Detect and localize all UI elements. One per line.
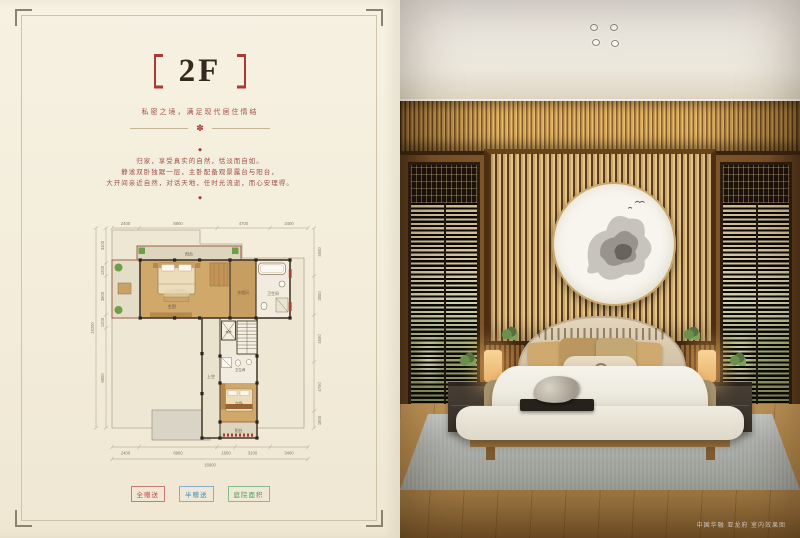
downlight-icon bbox=[611, 40, 619, 47]
dim-label: 1200 bbox=[100, 317, 105, 327]
dim-label: 3800 bbox=[100, 291, 105, 301]
window-blinds bbox=[723, 203, 789, 404]
paragraph-line: 静谧双卧独踞一层，主卧配备观景露台与阳台， bbox=[40, 167, 360, 178]
bench-leg bbox=[486, 447, 495, 460]
plan-legend: 全赠送 半赠送 庭院面积 bbox=[0, 486, 400, 502]
dim-label: 3100 bbox=[248, 451, 258, 456]
window-blinds bbox=[411, 203, 477, 404]
dim-label: 3400 bbox=[284, 221, 294, 226]
paragraph-line: 归家，享受真实的自然，恬淡而自如。 bbox=[40, 156, 360, 167]
dim-label: 6900 bbox=[173, 221, 183, 226]
downlight-icon bbox=[590, 24, 598, 31]
plant-icon bbox=[502, 326, 518, 340]
floor-plan: 阳台 主卧 衣帽间 卫生间 上空 电梯 卫生间 次卧 阳台 bbox=[52, 206, 342, 476]
wood-slat-cornice bbox=[400, 99, 800, 155]
dim-label: 6900 bbox=[173, 451, 183, 456]
window-right bbox=[720, 162, 792, 407]
dim-total-label: 16800 bbox=[204, 463, 216, 468]
dim-label: 4700 bbox=[317, 382, 322, 392]
rock-painting bbox=[554, 184, 670, 300]
dim-label: 1200 bbox=[100, 265, 105, 275]
divider-line bbox=[130, 128, 188, 129]
frame-corner-icon bbox=[15, 9, 32, 26]
downlight-icon bbox=[610, 24, 618, 31]
plant-icon bbox=[684, 326, 700, 340]
description-paragraph: 归家，享受真实的自然，恬淡而自如。 静谧双卧独踞一层，主卧配备观景露台与阳台， … bbox=[40, 156, 360, 189]
legend-full-gift: 全赠送 bbox=[131, 486, 166, 502]
foot-bench bbox=[456, 406, 744, 440]
room-label: 上空 bbox=[207, 373, 215, 379]
diamond-icon: ◆ bbox=[0, 195, 400, 201]
bench-leg bbox=[706, 447, 715, 460]
dim-label: 1800 bbox=[317, 415, 322, 425]
plant-icon bbox=[460, 352, 476, 366]
title-bracket-right-icon bbox=[237, 54, 246, 88]
room-label: 衣帽间 bbox=[237, 290, 249, 295]
circular-wall-art bbox=[552, 182, 676, 306]
room-label: 阳台 bbox=[235, 428, 243, 433]
dim-label: 2400 bbox=[121, 221, 131, 226]
dim-label: 4700 bbox=[239, 221, 249, 226]
room-label: 阳台 bbox=[185, 251, 193, 257]
dim-label: 2400 bbox=[121, 451, 131, 456]
dim-label: 3800 bbox=[317, 291, 322, 301]
dim-total-label: 19200 bbox=[90, 322, 95, 334]
divider-line bbox=[212, 128, 270, 129]
legend-half-gift: 半赠送 bbox=[179, 486, 214, 502]
dim-label: 3400 bbox=[284, 451, 294, 456]
dim-label: 1600 bbox=[221, 451, 231, 456]
room-label: 次卧 bbox=[235, 400, 243, 407]
flyer-page: 2F 私密之境，满足现代居住情结 ✽ ◆ 归家，享受真实的自然，恬淡而自如。 静… bbox=[0, 0, 400, 538]
window-left bbox=[408, 162, 480, 407]
window-lattice bbox=[723, 165, 789, 203]
paragraph-line: 大开间亲近自然，对话天地，任时光流逝，而心安理得。 bbox=[40, 178, 360, 189]
legend-courtyard-area: 庭院面积 bbox=[228, 486, 270, 502]
room-label: 主卧 bbox=[168, 303, 177, 310]
floor-title-row: 2F bbox=[0, 54, 400, 88]
room-label: 卫生间 bbox=[235, 367, 246, 372]
flower-medallion-icon: ✽ bbox=[196, 124, 204, 133]
frame-corner-icon bbox=[366, 9, 383, 26]
ceiling bbox=[400, 0, 800, 100]
interior-photo: 中国华融 亚龙府 室内效果图 bbox=[400, 0, 800, 538]
room-label: 卫生间 bbox=[267, 291, 279, 296]
floor-subtitle: 私密之境，满足现代居住情结 bbox=[0, 107, 400, 117]
dim-label: 9800 bbox=[100, 373, 105, 383]
flyer-canvas: 2F 私密之境，满足现代居住情结 ✽ ◆ 归家，享受真实的自然，恬淡而自如。 静… bbox=[0, 0, 800, 538]
window-lattice bbox=[411, 165, 477, 203]
diamond-icon: ◆ bbox=[0, 147, 400, 153]
floor-title: 2F bbox=[179, 54, 222, 88]
room-label: 电梯 bbox=[225, 329, 231, 334]
downlight-icon bbox=[592, 39, 600, 46]
dim-label: 3400 bbox=[100, 240, 105, 250]
frame-corner-icon bbox=[366, 510, 383, 527]
plant-icon bbox=[730, 352, 746, 366]
title-bracket-left-icon bbox=[154, 54, 163, 88]
dim-label: 4600 bbox=[317, 247, 322, 257]
dim-label: 4500 bbox=[317, 334, 322, 344]
photo-caption: 中国华融 亚龙府 室内效果图 bbox=[697, 520, 786, 529]
divider: ✽ bbox=[0, 124, 400, 133]
frame-corner-icon bbox=[15, 510, 32, 527]
